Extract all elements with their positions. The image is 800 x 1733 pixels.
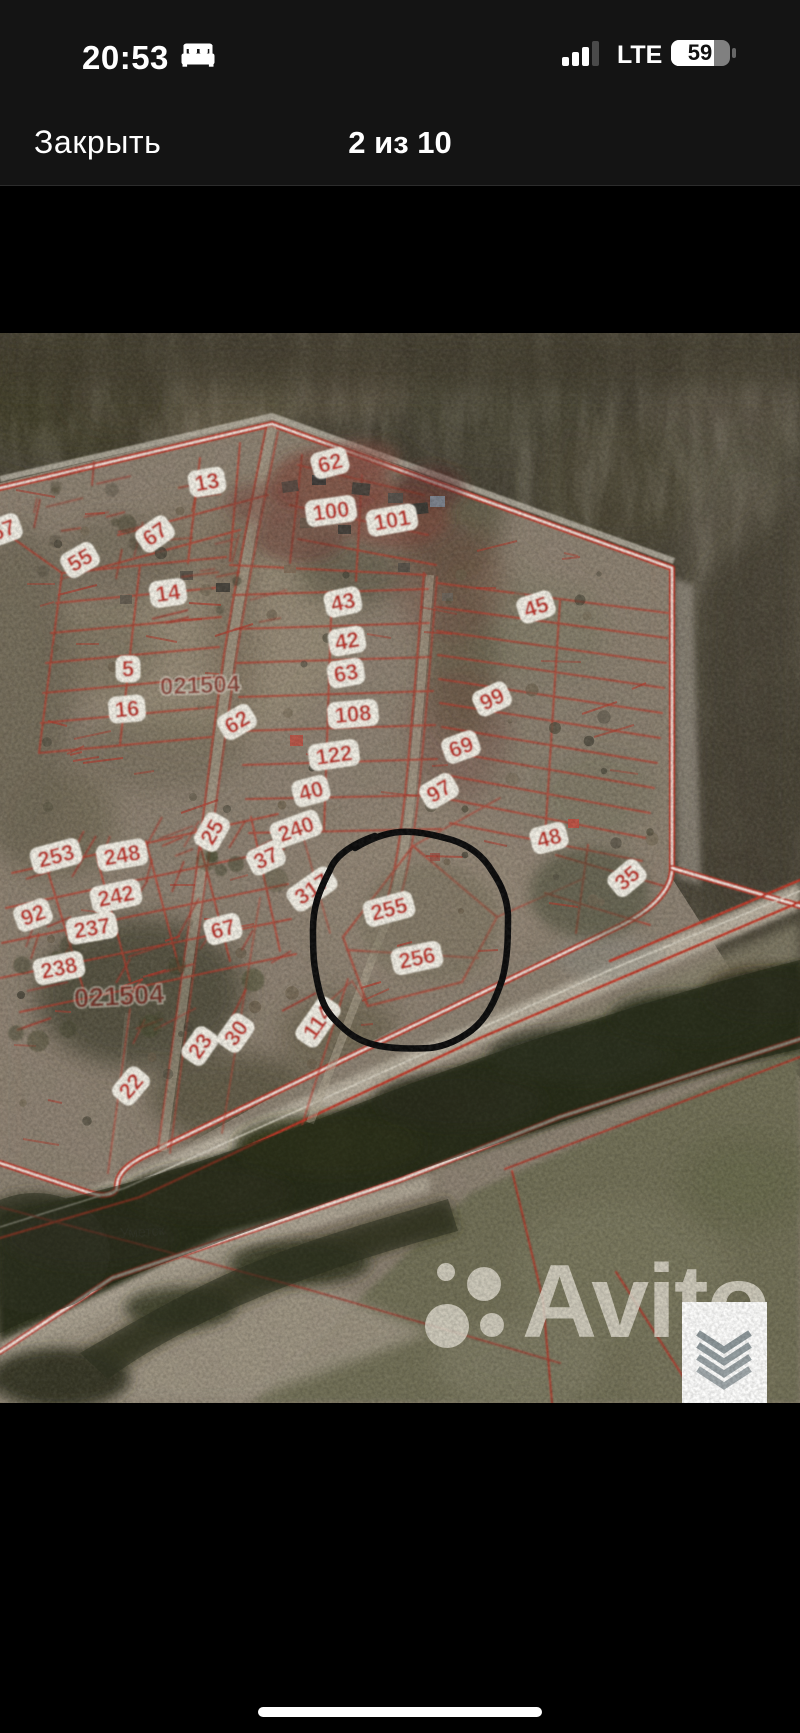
svg-text:59: 59 xyxy=(688,40,712,65)
